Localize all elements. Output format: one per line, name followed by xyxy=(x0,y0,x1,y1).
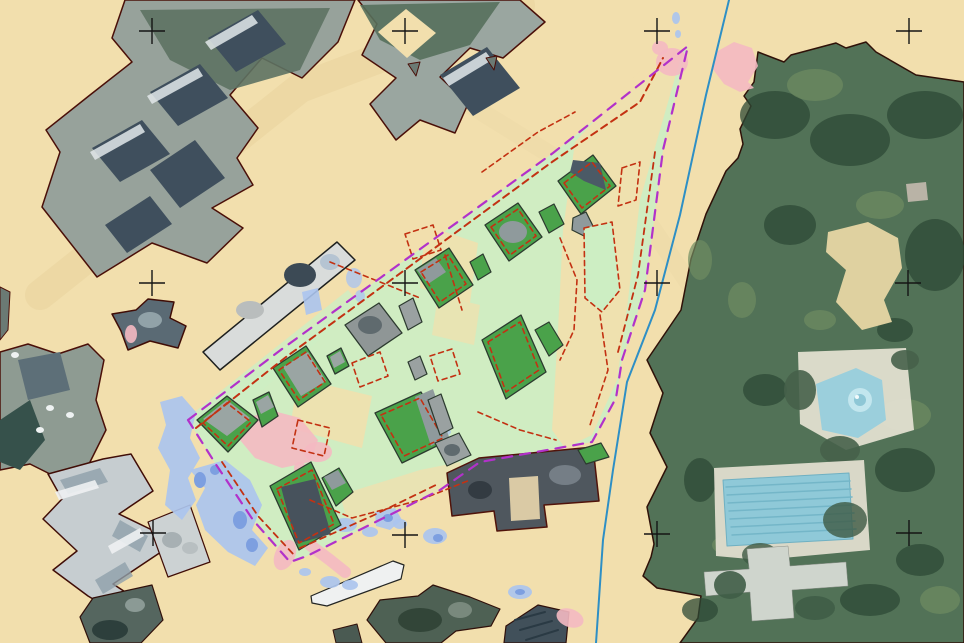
blue-patch-dark xyxy=(194,472,206,488)
map-feature-layer xyxy=(0,0,964,643)
car-speck xyxy=(66,412,74,418)
roof-smudge xyxy=(182,542,198,554)
tree-shadow xyxy=(887,91,963,139)
roof-shadow xyxy=(92,620,128,640)
roof-shadow xyxy=(398,608,442,632)
blue-patch-dark xyxy=(246,538,258,552)
deck-tree-overhang xyxy=(891,350,919,370)
roof-highlight xyxy=(125,598,145,612)
roof-smudge xyxy=(236,301,264,319)
tree-light xyxy=(688,240,712,280)
aerial-map-canvas xyxy=(0,0,964,643)
blue-patch xyxy=(342,580,358,590)
roof-highlight xyxy=(138,312,162,328)
map-viewport[interactable] xyxy=(0,0,964,643)
deck-tree-overhang xyxy=(784,370,816,410)
tree-light xyxy=(856,191,904,219)
blue-patch-dark xyxy=(233,511,247,529)
courtyard xyxy=(509,476,540,521)
tree-shadow xyxy=(684,458,716,502)
tree-light xyxy=(920,586,960,614)
tree-light xyxy=(787,69,843,101)
pink-zone xyxy=(125,325,137,343)
blue-patch xyxy=(299,568,311,576)
tree-over-building xyxy=(795,596,835,620)
tree-over-building xyxy=(714,571,746,599)
blue-patch-dark xyxy=(433,534,443,542)
blue-patch xyxy=(320,576,340,588)
tree-shadow xyxy=(905,219,964,291)
tree-shadow xyxy=(764,205,816,245)
pool-slide-swirl xyxy=(855,395,859,399)
blue-patch xyxy=(675,30,681,38)
blue-patch-dark xyxy=(515,589,525,595)
tree-shadow xyxy=(743,374,787,406)
roof-highlight xyxy=(549,465,581,485)
tree-light xyxy=(804,310,836,330)
pool-tree-shadow xyxy=(823,502,867,538)
parcel-roof xyxy=(499,221,527,243)
blue-patch xyxy=(672,12,680,24)
car-speck xyxy=(46,405,54,411)
tree-shadow xyxy=(682,598,718,622)
tree-shadow xyxy=(810,114,890,166)
blue-patch xyxy=(346,268,362,288)
car-speck xyxy=(36,427,44,433)
roof-smudge xyxy=(162,532,182,548)
roof-highlight xyxy=(448,602,472,618)
tree-shadow xyxy=(840,584,900,616)
roof-shadow xyxy=(468,481,492,499)
tree-shadow xyxy=(875,448,935,492)
tree-light xyxy=(728,282,756,318)
car-speck xyxy=(11,352,19,358)
deck-tree-overhang xyxy=(820,436,860,464)
pink-zone xyxy=(304,442,332,462)
pink-zone xyxy=(652,41,668,55)
roof-vent-smudge xyxy=(284,263,316,287)
roof-shadow xyxy=(358,316,382,334)
tree-shadow xyxy=(896,544,944,576)
woods-hut xyxy=(906,182,928,202)
roof-shadow xyxy=(444,444,460,456)
